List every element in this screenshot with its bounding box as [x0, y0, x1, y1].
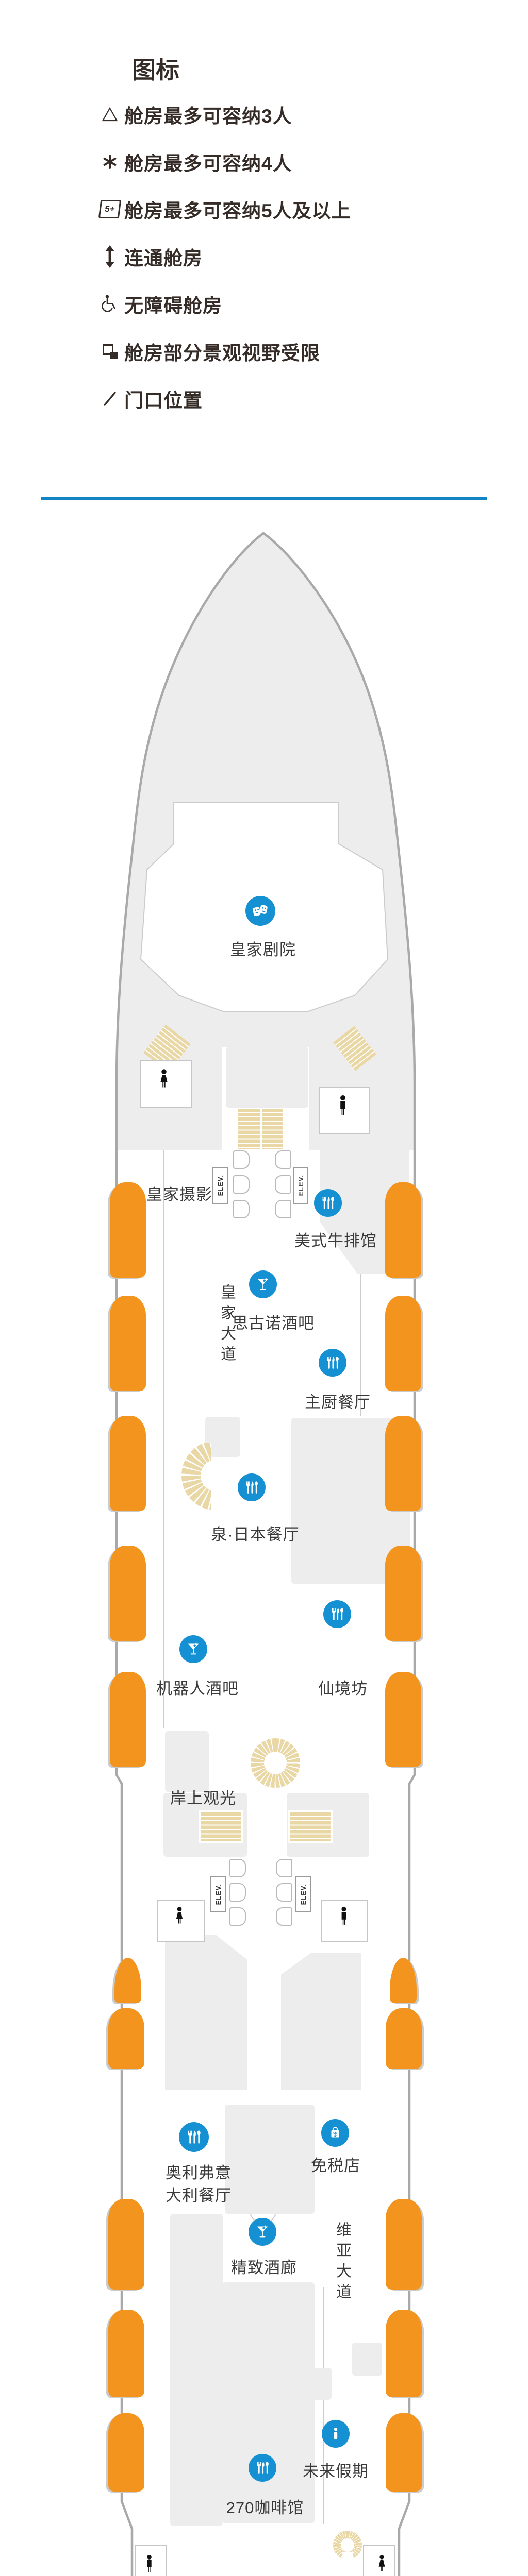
- seat: [276, 1907, 292, 1926]
- deck-plan-page: 图标 舱房最多可容纳3人 舱房最多可容纳4人 5+ 舱房最多可容纳5人及以上 连…: [0, 0, 528, 2576]
- venue-label-wonderland: 仙境坊: [318, 1675, 368, 1699]
- legend-row-connecting: 连通舱房: [95, 245, 203, 268]
- seat: [275, 1175, 291, 1194]
- center-block-lower: [223, 2282, 315, 2523]
- venue-label-shore-excursions: 岸上观光: [170, 1785, 236, 1808]
- wheelchair-icon: [95, 294, 124, 314]
- shopping-bag-icon: [321, 2119, 349, 2147]
- venue-label-schooner-bar: 思古诺酒吧: [232, 1310, 315, 1333]
- legend-label: 门口位置: [124, 385, 203, 413]
- bar-icon: [249, 1270, 277, 1298]
- door-position-slash-icon: [95, 391, 124, 407]
- venue-label-vintages: 精致酒廊: [231, 2255, 297, 2278]
- restaurant-icon: [238, 1473, 266, 1501]
- seat: [229, 1859, 246, 1877]
- lifeboat: [386, 2310, 422, 2397]
- lifeboat: [386, 2008, 422, 2069]
- legend-label: 舱房最多可容纳4人: [124, 148, 292, 176]
- lifeboat: [385, 1416, 421, 1511]
- venue-label-royal-theater: 皇家剧院: [230, 937, 296, 960]
- elevator: ELEV.: [212, 1167, 228, 1204]
- bar-icon: [249, 2218, 276, 2246]
- restaurant-icon: [319, 1349, 346, 1377]
- starboard-small-block-2: [303, 2368, 332, 2400]
- spiral-stairs: [333, 2531, 362, 2560]
- elevator: ELEV.: [295, 1876, 311, 1912]
- lifeboat: [385, 1296, 421, 1391]
- legend-label: 连通舱房: [124, 243, 203, 270]
- seat: [233, 1150, 250, 1169]
- venue-label-izumi: 泉·日本餐厅: [211, 1521, 299, 1545]
- connecting-cabins-arrow-icon: [95, 245, 124, 268]
- female-restroom-icon: [174, 1906, 185, 1933]
- venue-label-duty-free: 免税店: [311, 2153, 360, 2176]
- elevator: ELEV.: [293, 1167, 308, 1204]
- male-restroom-icon: [144, 2554, 155, 2576]
- triangle-icon: [95, 107, 124, 122]
- seat: [229, 1907, 246, 1926]
- legend-row-max4: 舱房最多可容纳4人: [95, 150, 292, 174]
- galley-block-right: [281, 1953, 361, 2090]
- female-restroom-icon: [376, 2554, 387, 2576]
- legend-label: 无障碍舱房: [124, 290, 222, 318]
- seat: [275, 1150, 291, 1169]
- lifeboat: [110, 1296, 146, 1391]
- legend-label: 舱房最多可容纳3人: [124, 100, 292, 128]
- restaurant-icon: [314, 1189, 342, 1217]
- center-block-tall: [170, 2214, 223, 2526]
- port-side-block: [165, 1731, 209, 1792]
- lifeboat: [386, 2199, 422, 2290]
- legend-label: 舱房最多可容纳5人及以上: [124, 195, 351, 223]
- info-icon: [322, 2420, 350, 2448]
- venue-label-cafe-270: 270咖啡馆: [226, 2495, 304, 2518]
- legend-row-max5plus: 5+ 舱房最多可容纳5人及以上: [95, 197, 351, 221]
- venue-label-via-avenue: 维亚大道: [331, 2222, 353, 2304]
- asterisk-icon: [95, 154, 124, 170]
- obstructed-view-icon: [95, 344, 124, 359]
- theater-masks-icon: [245, 896, 275, 926]
- male-restroom-icon: [338, 1906, 350, 1933]
- legend-row-door: 门口位置: [95, 387, 203, 411]
- starboard-small-block-1: [352, 2343, 382, 2376]
- female-restroom-icon: [158, 1069, 170, 1096]
- lifeboat: [108, 2413, 144, 2492]
- lifeboat: [108, 2008, 144, 2069]
- lifeboat: [108, 2199, 144, 2290]
- stairs: [288, 1810, 333, 1843]
- theater-stage-block: [226, 1047, 308, 1108]
- venue-label-american-steakhouse: 美式牛排馆: [294, 1228, 377, 1251]
- venue-label-olivers-italian: 奥利弗意 大利餐厅: [166, 2162, 232, 2207]
- lifeboat: [385, 1672, 421, 1767]
- lifeboat: [110, 1546, 146, 1641]
- restaurant-icon: [179, 2122, 209, 2152]
- spiral-stairs: [251, 1738, 300, 1788]
- five-plus-icon: 5+: [95, 200, 124, 218]
- seat: [275, 1200, 291, 1218]
- seat: [233, 1200, 250, 1218]
- lifeboat: [110, 1672, 146, 1767]
- curved-stairs: [181, 1443, 211, 1510]
- venue-label-chefs-table: 主厨餐厅: [305, 1389, 371, 1412]
- legend-row-accessible: 无障碍舱房: [95, 292, 222, 316]
- restaurant-icon: [249, 2454, 276, 2482]
- lifeboat: [110, 1182, 146, 1278]
- legend-row-obstructed: 舱房部分景观视野受限: [95, 340, 320, 363]
- tender-boat: [114, 1958, 141, 2003]
- lifeboat: [110, 1416, 146, 1511]
- venue-label-royal-esplanade: 皇家大道: [215, 1284, 238, 1366]
- galley-block-left: [165, 1935, 247, 2090]
- legend-title: 图标: [132, 52, 179, 86]
- lifeboat: [108, 2310, 144, 2397]
- seat: [229, 1883, 246, 1902]
- elevator: ELEV.: [210, 1876, 226, 1912]
- venue-label-bionic-bar: 机器人酒吧: [156, 1675, 239, 1699]
- seat: [276, 1859, 292, 1877]
- stairs: [333, 1026, 376, 1071]
- lifeboat: [385, 1182, 421, 1278]
- venue-label-royal-photo: 皇家摄影: [146, 1181, 212, 1205]
- seat: [233, 1175, 250, 1194]
- five-plus-text: 5+: [98, 200, 121, 218]
- stairs: [238, 1109, 283, 1149]
- tender-boat: [390, 1958, 417, 2003]
- legend-label: 舱房部分景观视野受限: [124, 337, 320, 365]
- venue-label-next-cruise: 未来假期: [303, 2458, 369, 2481]
- lifeboat: [385, 1546, 421, 1641]
- restaurant-icon: [323, 1600, 351, 1628]
- section-divider: [41, 497, 487, 500]
- stairs: [199, 1810, 243, 1843]
- bar-icon: [179, 1635, 207, 1663]
- male-restroom-icon: [337, 1095, 349, 1123]
- center-block-upper: [225, 2105, 315, 2214]
- lifeboat: [386, 2413, 422, 2492]
- legend-row-max3: 舱房最多可容纳3人: [95, 103, 292, 126]
- seat: [276, 1883, 292, 1902]
